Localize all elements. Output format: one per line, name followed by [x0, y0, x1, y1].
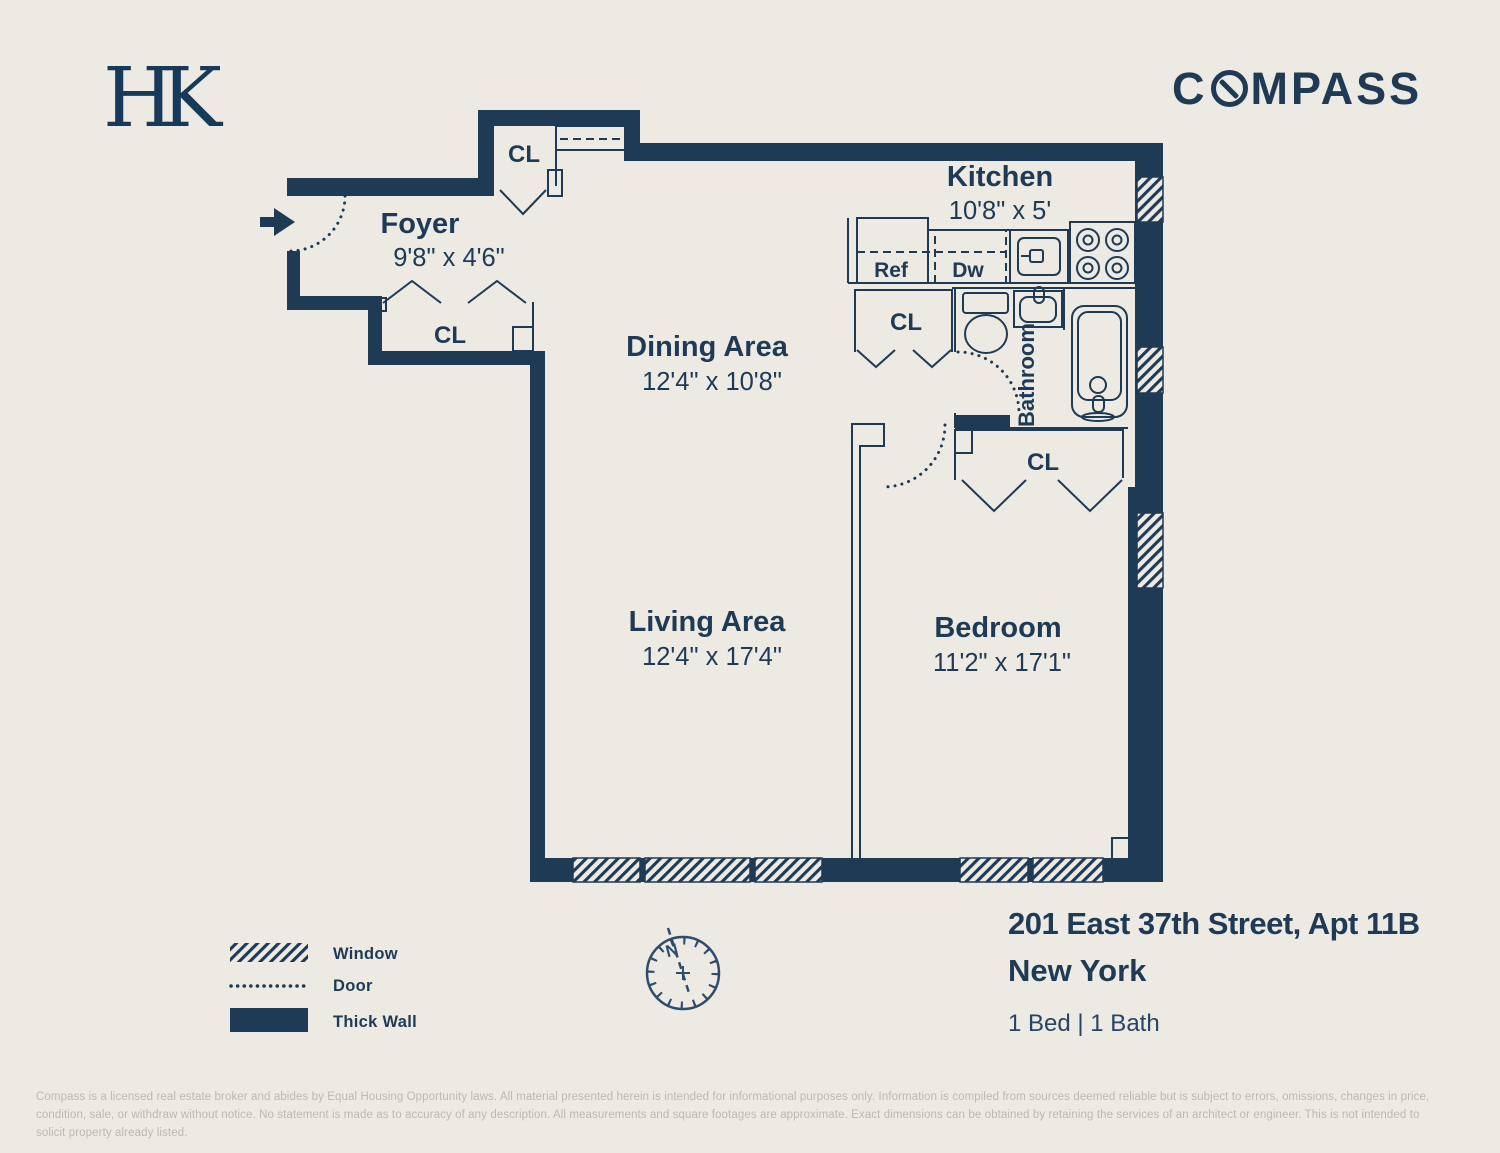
- listing-city: New York: [1008, 955, 1468, 986]
- bathtub-inner: [1078, 312, 1121, 400]
- bath-sink-icon: [1020, 297, 1056, 322]
- room-label-bedroom: Bedroom: [934, 612, 1061, 644]
- legend-door-label: Door: [333, 977, 373, 995]
- room-label-kitchen: Kitchen: [947, 161, 1053, 193]
- bedroom-closet-door-left: [962, 480, 1026, 511]
- closet-label-foyer: CL: [434, 322, 466, 349]
- burner-icon: [1077, 257, 1099, 279]
- burner-icon: [1084, 236, 1093, 245]
- bath-faucet-icon: [1034, 287, 1044, 303]
- bedroom-door-swing: [883, 425, 945, 487]
- burner-icon: [1106, 229, 1128, 251]
- closet-label-top: CL: [508, 141, 540, 168]
- window-bedroom-2: [1033, 858, 1103, 882]
- room-label-dining: Dining Area: [626, 331, 789, 363]
- burner-icon: [1077, 229, 1099, 251]
- room-label-living: Living Area: [629, 606, 787, 638]
- legend-thick-wall-label: Thick Wall: [333, 1013, 417, 1031]
- compass-center-cross: [676, 966, 690, 980]
- legend-window-label: Window: [333, 945, 398, 963]
- room-dims-foyer: 9'8" x 4'6": [393, 244, 505, 272]
- burner-icon: [1106, 257, 1128, 279]
- refrigerator-label: Ref: [874, 259, 909, 282]
- window-living-3: [755, 858, 822, 882]
- room-dims-living: 12'4" x 17'4": [642, 643, 782, 671]
- north-label: N: [663, 940, 680, 962]
- bedroom-closet-jamb: [955, 430, 972, 453]
- room-dims-bedroom: 11'2" x 17'1": [933, 649, 1071, 677]
- foyer-closet-door-left: [383, 281, 441, 303]
- listing-address: 201 East 37th Street, Apt 11B: [1008, 908, 1468, 939]
- bedroom-closet-door-right: [1058, 480, 1122, 511]
- burner-icon: [1084, 264, 1093, 273]
- kitchen-closet-door-right: [913, 350, 951, 367]
- closet-label-bedroom: CL: [1027, 449, 1059, 476]
- window-bedroom-side: [1137, 513, 1163, 588]
- legend: Window Door Thick Wall: [230, 943, 417, 1032]
- window-living-1: [573, 858, 640, 882]
- window-bedroom-1: [960, 858, 1028, 882]
- compass-rose: N: [647, 928, 719, 1009]
- kitchen-closet-door-left: [857, 350, 895, 367]
- room-dims-kitchen: 10'8" x 5': [949, 197, 1051, 225]
- window-living-2: [645, 858, 750, 882]
- bathtub-faucet-icon: [1093, 396, 1104, 412]
- top-closet-door: [500, 190, 546, 214]
- closet-label-kitchen: CL: [890, 309, 922, 336]
- burner-icon: [1113, 264, 1122, 273]
- listing-beds-baths: 1 Bed | 1 Bath: [1008, 1012, 1468, 1036]
- entry-arrow-icon: [260, 208, 295, 236]
- listing-info: 201 East 37th Street, Apt 11B New York 1…: [1008, 908, 1468, 1036]
- room-labels: Foyer 9'8" x 4'6" Kitchen 10'8" x 5' Din…: [381, 141, 1071, 677]
- window-bathroom: [1137, 347, 1163, 393]
- room-label-foyer: Foyer: [381, 208, 460, 240]
- legend-window-swatch: [230, 943, 308, 962]
- room-dims-dining: 12'4" x 10'8": [642, 368, 782, 396]
- interior-walls: [376, 126, 1135, 858]
- legend-thick-wall-swatch: [230, 1008, 308, 1032]
- burner-icon: [1113, 236, 1122, 245]
- bathtub-drain-icon: [1090, 377, 1106, 393]
- toilet-bowl-icon: [965, 315, 1007, 353]
- living-bedroom-divider-wall: [852, 424, 884, 858]
- window-kitchen: [1137, 177, 1163, 222]
- dishwasher-label: Dw: [952, 259, 984, 282]
- toilet-tank-icon: [963, 293, 1008, 313]
- kitchen-faucet-icon: [1030, 250, 1043, 262]
- foyer-closet-jamb-right: [513, 327, 533, 351]
- bathroom-door-swing: [958, 352, 1019, 413]
- entry-door-swing: [291, 196, 345, 251]
- foyer-closet-door-right: [468, 281, 526, 303]
- disclaimer-text: Compass is a licensed real estate broker…: [36, 1089, 1448, 1142]
- room-label-bathroom: Bathroom: [1014, 323, 1039, 427]
